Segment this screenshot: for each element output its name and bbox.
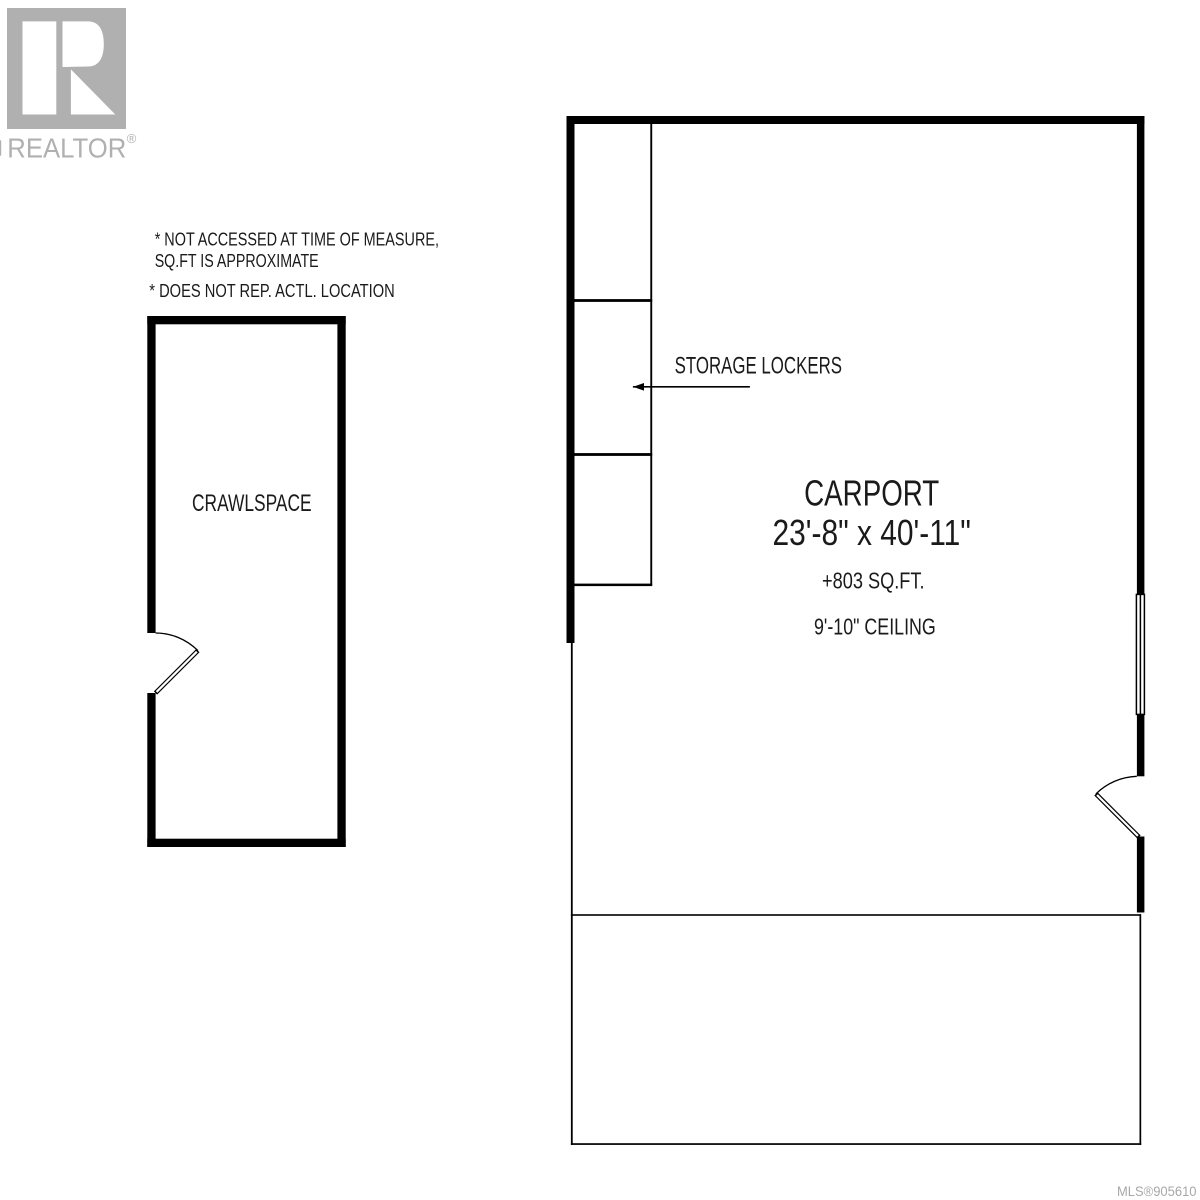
svg-text:REALTOR: REALTOR [7, 133, 126, 164]
svg-text:CARPORT: CARPORT [804, 473, 939, 514]
svg-text:* DOES NOT REP. ACTL. LOCATION: * DOES NOT REP. ACTL. LOCATION [149, 281, 394, 301]
svg-text:* NOT ACCESSED AT TIME OF MEAS: * NOT ACCESSED AT TIME OF MEASURE, [155, 229, 439, 249]
svg-text:STORAGE LOCKERS: STORAGE LOCKERS [675, 352, 842, 379]
svg-text:9'-10" CEILING: 9'-10" CEILING [814, 613, 936, 639]
svg-text:MLS®905610: MLS®905610 [1117, 1183, 1197, 1199]
svg-text:®: ® [127, 131, 137, 146]
svg-text:+803 SQ.FT.: +803 SQ.FT. [822, 567, 925, 593]
svg-text:CRAWLSPACE: CRAWLSPACE [192, 490, 312, 517]
svg-text:23'-8" x 40'-11": 23'-8" x 40'-11" [773, 512, 971, 553]
svg-text:SQ.FT IS APPROXIMATE: SQ.FT IS APPROXIMATE [155, 251, 319, 271]
